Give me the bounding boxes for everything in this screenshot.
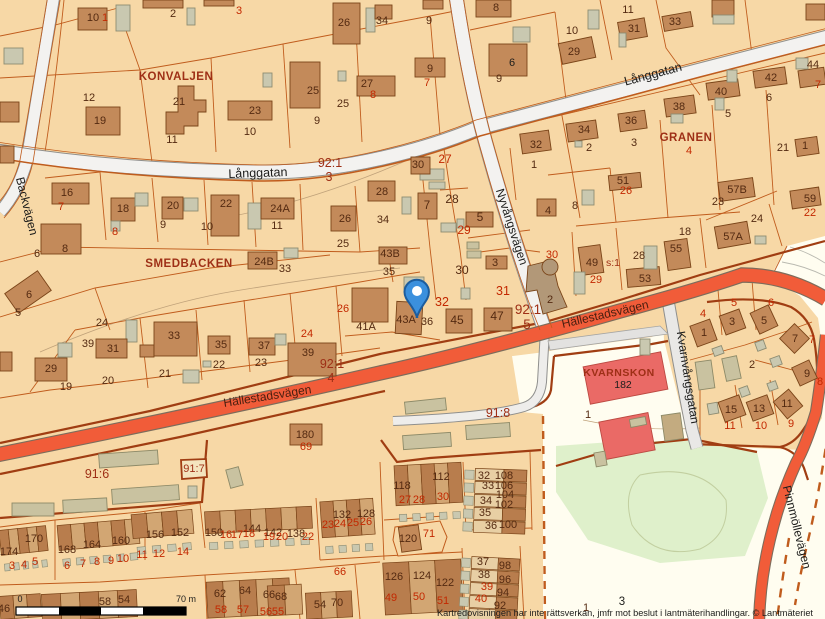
svg-text:23: 23 (712, 196, 724, 208)
svg-text:37: 37 (477, 556, 489, 568)
svg-text:23: 23 (255, 357, 267, 369)
svg-text:10: 10 (117, 553, 129, 565)
svg-text:25: 25 (347, 517, 359, 529)
svg-text:6: 6 (509, 57, 515, 69)
svg-text:1: 1 (802, 140, 808, 152)
svg-text:25: 25 (337, 238, 349, 250)
svg-text:55: 55 (272, 606, 284, 618)
svg-text:57: 57 (237, 604, 249, 616)
svg-text:26: 26 (339, 213, 351, 225)
svg-text:26: 26 (620, 185, 632, 197)
svg-text:8: 8 (112, 226, 118, 238)
svg-text:1: 1 (102, 12, 108, 24)
svg-text:3: 3 (326, 170, 333, 184)
svg-text:91:7: 91:7 (183, 463, 204, 475)
svg-text:35: 35 (479, 507, 491, 519)
svg-text:71: 71 (423, 528, 435, 540)
svg-text:26: 26 (338, 17, 350, 29)
svg-text:44: 44 (807, 59, 819, 71)
svg-text:11: 11 (136, 549, 147, 561)
svg-text:6: 6 (766, 92, 772, 104)
svg-text:7: 7 (809, 334, 815, 346)
svg-text:5: 5 (731, 297, 737, 309)
svg-text:57B: 57B (727, 184, 747, 196)
svg-text:3: 3 (729, 316, 735, 328)
svg-text:91:6: 91:6 (85, 467, 109, 481)
svg-text:KVARNSKON: KVARNSKON (583, 367, 654, 379)
svg-text:62: 62 (214, 588, 226, 600)
svg-text:40: 40 (715, 86, 727, 98)
svg-text:32: 32 (530, 139, 542, 151)
svg-text:10: 10 (566, 25, 578, 37)
svg-text:57A: 57A (723, 231, 743, 243)
svg-text:24A: 24A (270, 203, 290, 215)
svg-text:43A: 43A (396, 314, 416, 326)
svg-text:34: 34 (377, 214, 389, 226)
svg-text:23: 23 (249, 105, 261, 117)
svg-text:1: 1 (585, 409, 591, 421)
svg-text:11: 11 (724, 420, 735, 432)
svg-text:10: 10 (87, 12, 99, 24)
svg-text:174: 174 (0, 546, 18, 558)
svg-text:33: 33 (279, 263, 291, 275)
svg-text:54: 54 (314, 599, 326, 611)
svg-text:3: 3 (619, 596, 625, 608)
svg-text:7: 7 (424, 77, 430, 89)
svg-text:2: 2 (749, 359, 755, 371)
svg-text:20: 20 (167, 200, 179, 212)
svg-text:5: 5 (15, 307, 21, 319)
svg-text:19: 19 (263, 531, 275, 543)
svg-text:25: 25 (307, 85, 319, 97)
svg-text:9: 9 (426, 15, 432, 27)
svg-text:14: 14 (177, 546, 189, 558)
svg-text:8: 8 (572, 200, 578, 212)
svg-text:126: 126 (385, 571, 403, 583)
svg-text:3: 3 (236, 5, 242, 17)
svg-text:11: 11 (781, 398, 792, 410)
svg-text:s:1: s:1 (606, 257, 620, 269)
svg-text:8: 8 (493, 2, 499, 14)
svg-text:20: 20 (102, 375, 114, 387)
svg-text:9: 9 (788, 418, 794, 430)
svg-text:32: 32 (435, 295, 449, 309)
svg-text:21: 21 (777, 142, 789, 154)
svg-text:49: 49 (586, 257, 598, 269)
svg-text:3: 3 (492, 257, 498, 269)
svg-text:42: 42 (765, 72, 777, 84)
svg-text:21: 21 (159, 368, 171, 380)
svg-text:28: 28 (633, 250, 645, 262)
svg-text:22: 22 (804, 207, 816, 219)
svg-text:18: 18 (679, 226, 691, 238)
svg-text:9: 9 (160, 219, 166, 231)
svg-text:17: 17 (231, 529, 243, 541)
svg-text:53: 53 (639, 273, 651, 285)
svg-text:33: 33 (482, 480, 494, 492)
svg-text:36: 36 (625, 115, 637, 127)
svg-text:19: 19 (94, 115, 106, 127)
svg-text:37: 37 (258, 340, 270, 352)
svg-text:11: 11 (166, 134, 177, 146)
svg-text:164: 164 (83, 539, 101, 551)
svg-text:SMEDBACKEN: SMEDBACKEN (145, 258, 232, 270)
svg-text:69: 69 (300, 441, 312, 453)
svg-text:26: 26 (360, 516, 372, 528)
svg-text:4: 4 (700, 308, 706, 320)
svg-text:170: 170 (25, 533, 43, 545)
svg-text:33: 33 (168, 330, 180, 342)
svg-text:7: 7 (424, 200, 430, 212)
svg-text:31: 31 (107, 343, 119, 355)
svg-text:34: 34 (376, 15, 388, 27)
svg-text:5: 5 (725, 108, 731, 120)
svg-text:22: 22 (213, 359, 225, 371)
svg-text:5: 5 (477, 210, 484, 224)
svg-text:7: 7 (80, 558, 86, 570)
svg-text:29: 29 (457, 223, 471, 237)
svg-text:7: 7 (58, 201, 64, 213)
svg-text:GRANEN: GRANEN (660, 132, 713, 144)
svg-text:182: 182 (614, 379, 632, 391)
svg-text:50: 50 (413, 591, 425, 603)
svg-text:30: 30 (455, 263, 469, 277)
svg-text:29: 29 (568, 46, 580, 58)
svg-text:34: 34 (578, 124, 590, 136)
svg-text:45: 45 (450, 313, 464, 327)
svg-text:Kartredovisningen har inte rät: Kartredovisningen har inte rättsverkan, … (437, 608, 813, 618)
svg-text:25: 25 (337, 98, 349, 110)
svg-text:112: 112 (432, 471, 450, 483)
svg-text:3: 3 (9, 560, 15, 572)
svg-text:54: 54 (118, 594, 130, 606)
svg-text:0: 0 (17, 594, 22, 604)
svg-text:19: 19 (60, 381, 72, 393)
svg-text:28: 28 (445, 192, 459, 206)
svg-text:36: 36 (485, 520, 497, 532)
svg-text:92:1: 92:1 (515, 302, 541, 317)
svg-text:35: 35 (383, 266, 395, 278)
svg-text:1: 1 (701, 327, 707, 339)
svg-text:66: 66 (263, 589, 275, 601)
svg-text:15: 15 (725, 404, 737, 416)
svg-text:2: 2 (547, 294, 553, 306)
svg-text:59: 59 (804, 193, 816, 205)
svg-text:47: 47 (490, 309, 504, 323)
svg-text:1: 1 (531, 159, 537, 171)
svg-text:29: 29 (590, 274, 602, 286)
svg-text:66: 66 (334, 566, 346, 578)
svg-text:26: 26 (337, 303, 349, 315)
svg-text:55: 55 (670, 243, 682, 255)
svg-text:91:8: 91:8 (486, 406, 510, 420)
svg-text:18: 18 (243, 528, 255, 540)
svg-text:10: 10 (755, 420, 767, 432)
svg-text:6: 6 (64, 560, 70, 572)
svg-text:98: 98 (499, 560, 511, 572)
svg-text:35: 35 (215, 339, 227, 351)
svg-text:23: 23 (322, 519, 334, 531)
svg-text:22: 22 (220, 198, 232, 210)
svg-text:92:1: 92:1 (318, 156, 342, 170)
svg-text:KONVALJEN: KONVALJEN (139, 71, 214, 83)
svg-text:2: 2 (170, 8, 176, 20)
svg-text:30: 30 (437, 491, 449, 503)
svg-text:7: 7 (815, 79, 821, 91)
svg-text:24: 24 (96, 317, 108, 329)
svg-text:94: 94 (497, 587, 509, 599)
svg-text:12: 12 (153, 548, 165, 560)
svg-text:36: 36 (421, 316, 433, 328)
svg-text:38: 38 (673, 101, 685, 113)
svg-text:40: 40 (475, 593, 487, 605)
svg-text:39: 39 (82, 338, 94, 350)
svg-text:3: 3 (631, 137, 637, 149)
svg-text:43B: 43B (380, 248, 400, 260)
svg-text:58: 58 (99, 596, 111, 608)
svg-text:122: 122 (436, 577, 454, 589)
svg-text:6: 6 (34, 248, 40, 260)
svg-text:46: 46 (0, 603, 10, 615)
svg-text:18: 18 (117, 203, 129, 215)
svg-text:29: 29 (45, 363, 57, 375)
svg-text:24: 24 (301, 328, 313, 340)
svg-text:8: 8 (817, 376, 823, 388)
svg-text:6: 6 (26, 289, 32, 301)
svg-text:100: 100 (499, 519, 517, 531)
svg-text:9: 9 (108, 555, 114, 567)
svg-text:Långgatan: Långgatan (228, 165, 288, 181)
svg-text:51: 51 (437, 595, 449, 607)
svg-text:5: 5 (32, 556, 38, 568)
svg-text:64: 64 (239, 585, 251, 597)
svg-text:11: 11 (622, 4, 633, 16)
svg-text:9: 9 (427, 63, 433, 75)
svg-text:180: 180 (296, 429, 314, 441)
svg-text:9: 9 (804, 368, 810, 380)
svg-text:4: 4 (545, 205, 551, 217)
svg-text:49: 49 (385, 592, 397, 604)
svg-text:28: 28 (376, 186, 388, 198)
svg-text:70: 70 (331, 597, 343, 609)
svg-text:8: 8 (94, 556, 100, 568)
svg-text:27: 27 (438, 152, 452, 166)
svg-text:34: 34 (480, 495, 492, 507)
svg-text:56: 56 (260, 606, 272, 618)
svg-text:39: 39 (302, 347, 314, 359)
svg-text:9: 9 (496, 73, 502, 85)
svg-text:41A: 41A (356, 321, 376, 333)
svg-text:124: 124 (413, 570, 431, 582)
svg-text:118: 118 (393, 480, 411, 492)
svg-text:156: 156 (146, 529, 164, 541)
svg-text:160: 160 (112, 535, 130, 547)
svg-text:5: 5 (523, 317, 531, 332)
svg-text:102: 102 (495, 499, 513, 511)
svg-text:20: 20 (276, 531, 288, 543)
svg-text:16: 16 (61, 187, 73, 199)
svg-text:10: 10 (244, 126, 256, 138)
svg-text:30: 30 (412, 159, 424, 171)
svg-text:30: 30 (546, 249, 558, 261)
svg-text:168: 168 (58, 544, 76, 556)
svg-text:31: 31 (496, 284, 510, 298)
svg-text:6: 6 (768, 297, 774, 309)
svg-text:92:1: 92:1 (320, 357, 344, 371)
svg-text:68: 68 (275, 591, 287, 603)
svg-text:4: 4 (328, 371, 335, 385)
svg-text:24B: 24B (254, 256, 274, 268)
svg-text:22: 22 (302, 531, 314, 543)
svg-text:70 m: 70 m (176, 594, 196, 604)
svg-text:58: 58 (215, 604, 227, 616)
svg-text:8: 8 (62, 243, 68, 255)
svg-text:5: 5 (761, 315, 767, 327)
svg-text:152: 152 (171, 527, 189, 539)
svg-text:39: 39 (481, 581, 493, 593)
svg-text:120: 120 (399, 533, 417, 545)
svg-text:27: 27 (399, 494, 411, 506)
svg-text:11: 11 (271, 220, 282, 232)
svg-text:10: 10 (201, 221, 213, 233)
svg-text:4: 4 (21, 559, 27, 571)
svg-text:38: 38 (478, 569, 490, 581)
svg-text:7: 7 (792, 333, 798, 345)
svg-text:8: 8 (370, 89, 376, 101)
svg-text:4: 4 (686, 145, 692, 157)
svg-text:21: 21 (173, 96, 185, 108)
svg-text:33: 33 (669, 16, 681, 28)
svg-text:12: 12 (83, 92, 95, 104)
svg-text:96: 96 (499, 574, 511, 586)
svg-text:13: 13 (753, 403, 765, 415)
svg-text:24: 24 (751, 213, 763, 225)
svg-text:2: 2 (586, 142, 592, 154)
svg-text:9: 9 (314, 115, 320, 127)
svg-text:24: 24 (334, 518, 346, 530)
svg-text:28: 28 (413, 494, 425, 506)
svg-text:31: 31 (628, 23, 640, 35)
